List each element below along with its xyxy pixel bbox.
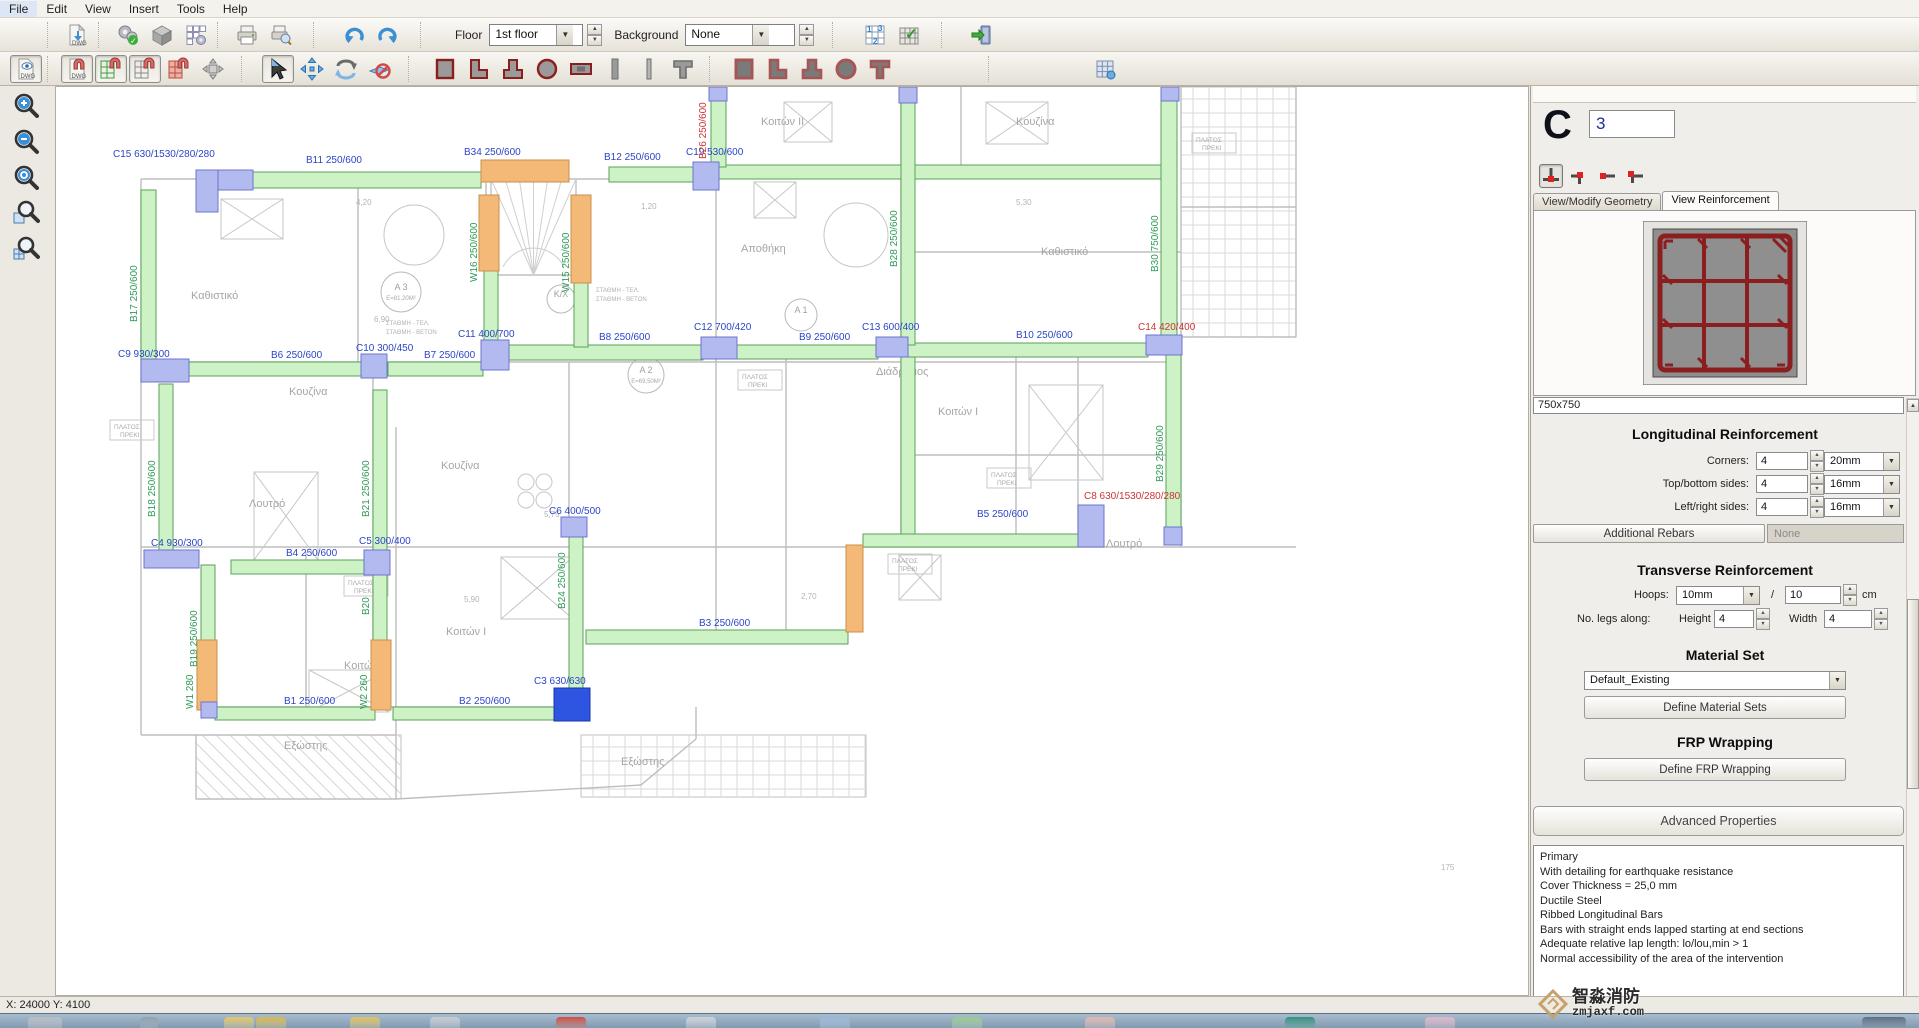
svg-text:ΠΛΑΤΟΣ: ΠΛΑΤΟΣ bbox=[892, 558, 918, 565]
svg-text:ΠΡΕΚΙ: ΠΡΕΚΙ bbox=[997, 480, 1017, 487]
svg-text:A 2: A 2 bbox=[639, 365, 652, 375]
svg-text:ΣΤΑΘΜΗ - ΒΕΤΟΝ: ΣΤΑΘΜΗ - ΒΕΤΟΝ bbox=[596, 297, 647, 303]
tee-filled-button[interactable] bbox=[864, 55, 896, 83]
watermark-logo-icon bbox=[1538, 989, 1568, 1019]
plan-label: C6 400/500 bbox=[549, 506, 601, 517]
plan-label: B30 750/600 bbox=[1150, 215, 1161, 272]
chevron-down-icon[interactable]: ▼ bbox=[1883, 453, 1899, 470]
svg-text:ΠΡΕΚΙ: ΠΡΕΚΙ bbox=[1202, 145, 1222, 152]
svg-text:ΠΛΑΤΟΣ: ΠΛΑΤΟΣ bbox=[1196, 137, 1222, 144]
chevron-down-icon[interactable]: ▼ bbox=[1883, 476, 1899, 493]
zoom-in-button[interactable] bbox=[6, 90, 46, 120]
left-right-diameter-select[interactable]: 16mm▼ bbox=[1824, 498, 1900, 517]
t-filled-button[interactable] bbox=[796, 55, 828, 83]
tee-section-button[interactable] bbox=[667, 55, 699, 83]
cube-button[interactable] bbox=[146, 21, 178, 49]
svg-text:Λουτρό: Λουτρό bbox=[1106, 538, 1142, 550]
plan-label: B9 250/600 bbox=[799, 332, 851, 343]
column[interactable] bbox=[709, 87, 727, 101]
section-reinforcement-preview bbox=[1643, 221, 1807, 385]
undo-button[interactable] bbox=[338, 21, 370, 49]
orientation-top-button[interactable] bbox=[1623, 164, 1647, 188]
plan-label: C9 930/300 bbox=[118, 349, 170, 360]
background-label: Background bbox=[614, 28, 678, 42]
beam[interactable] bbox=[233, 172, 481, 188]
column[interactable] bbox=[1164, 527, 1182, 545]
application-window: File Edit View Insert Tools Help DWG ✓ F… bbox=[0, 0, 1919, 1028]
chevron-down-icon[interactable]: ▼ bbox=[556, 25, 573, 45]
column[interactable] bbox=[364, 550, 390, 575]
svg-text:Εξώστης: Εξώστης bbox=[284, 740, 327, 752]
beam[interactable] bbox=[901, 92, 915, 345]
wall[interactable] bbox=[197, 640, 217, 710]
plan-label: C13 600/400 bbox=[862, 322, 920, 333]
wall[interactable] bbox=[846, 545, 863, 632]
advanced-properties-button[interactable]: Advanced Properties bbox=[1533, 806, 1904, 836]
delete-tool-button[interactable] bbox=[364, 55, 396, 83]
svg-text:Κουζίνα: Κουζίνα bbox=[289, 386, 328, 398]
hoops-spacing-input[interactable] bbox=[1785, 586, 1841, 604]
reinforcement-preview-area bbox=[1533, 210, 1916, 396]
frp-heading: FRP Wrapping bbox=[1531, 734, 1919, 750]
zoom-grid-button[interactable] bbox=[6, 234, 46, 264]
background-select[interactable]: None▼ bbox=[685, 24, 795, 46]
app-window-icon[interactable] bbox=[686, 1017, 716, 1028]
svg-text:ΠΛΑΤΟΣ: ΠΛΑΤΟΣ bbox=[114, 424, 140, 431]
plan-label: C15 630/1530/280/280 bbox=[113, 149, 215, 160]
top-bottom-count-input[interactable] bbox=[1756, 475, 1808, 493]
beam[interactable] bbox=[1166, 345, 1181, 535]
plan-label: C14 420/400 bbox=[1138, 322, 1196, 333]
beam[interactable] bbox=[609, 167, 693, 182]
rect-filled-button[interactable] bbox=[728, 55, 760, 83]
wall[interactable] bbox=[571, 195, 591, 283]
plan-label: B34 250/600 bbox=[464, 147, 521, 158]
wall-section-button[interactable] bbox=[565, 55, 597, 83]
svg-text:2,70: 2,70 bbox=[801, 592, 817, 601]
save-button[interactable] bbox=[10, 21, 42, 49]
hoops-slash: / bbox=[1771, 589, 1774, 601]
floor-plan[interactable]: A 3E=81,20M²A 1A 2E=69,50M²Κ/ΧΚαθιστικόΚ… bbox=[56, 87, 1528, 995]
beam[interactable] bbox=[388, 362, 483, 376]
folder-3-icon[interactable] bbox=[350, 1017, 380, 1028]
beam[interactable] bbox=[569, 535, 583, 692]
column[interactable] bbox=[196, 170, 218, 212]
column[interactable] bbox=[201, 702, 217, 718]
beam[interactable] bbox=[373, 390, 387, 552]
plan-label: B7 250/600 bbox=[424, 350, 476, 361]
plan-label: B4 250/600 bbox=[286, 548, 338, 559]
hoops-spacing-stepper[interactable]: ▲▼ bbox=[1843, 584, 1857, 606]
grid-check-button[interactable]: ✓ bbox=[893, 21, 925, 49]
plan-label: B10 250/600 bbox=[1016, 330, 1073, 341]
svg-text:ΠΛΑΤΟΣ: ΠΛΑΤΟΣ bbox=[991, 472, 1017, 479]
print-preview-button[interactable] bbox=[265, 21, 297, 49]
grid-snap-button[interactable] bbox=[129, 55, 161, 83]
top-bottom-stepper[interactable]: ▲▼ bbox=[1810, 473, 1824, 495]
properties-panel: C View/Modify Geometry View Reinforcemen… bbox=[1530, 86, 1919, 996]
svg-text:DWG: DWG bbox=[21, 74, 36, 80]
edit-toolbar: DWG DWG bbox=[0, 52, 1919, 86]
svg-text:ΠΛΑΤΟΣ: ΠΛΑΤΟΣ bbox=[348, 580, 374, 587]
zoom-extents-button[interactable] bbox=[6, 162, 46, 192]
beam[interactable] bbox=[176, 362, 363, 376]
settings-check-button[interactable]: ✓ bbox=[112, 21, 144, 49]
left-right-count-input[interactable] bbox=[1756, 498, 1808, 516]
corners-diameter-select[interactable]: 20mm▼ bbox=[1824, 452, 1900, 471]
scroll-up-icon[interactable]: ▲ bbox=[1907, 399, 1919, 412]
plan-label: B19 250/600 bbox=[189, 610, 200, 667]
legs-height-stepper[interactable]: ▲▼ bbox=[1756, 608, 1770, 630]
orientation-bottom-button[interactable] bbox=[1539, 164, 1563, 188]
svg-text:175: 175 bbox=[1441, 863, 1455, 872]
beam[interactable] bbox=[393, 707, 556, 720]
zoom-toolbar bbox=[6, 90, 52, 264]
zoom-out-button[interactable] bbox=[6, 126, 46, 156]
orientation-left-button[interactable] bbox=[1567, 164, 1591, 188]
column[interactable] bbox=[1161, 87, 1179, 101]
t-section-button[interactable] bbox=[497, 55, 529, 83]
floor-label: Floor bbox=[455, 28, 482, 42]
column[interactable] bbox=[899, 87, 917, 103]
l-section-button[interactable] bbox=[463, 55, 495, 83]
hoops-label: Hoops: bbox=[1634, 589, 1669, 601]
app-rose-icon[interactable] bbox=[1425, 1017, 1455, 1028]
app-red-icon[interactable] bbox=[556, 1017, 586, 1028]
plan-label: W2 260 bbox=[359, 674, 370, 709]
svg-text:3: 3 bbox=[878, 24, 883, 33]
dwg-import-button[interactable]: DWG bbox=[61, 21, 93, 49]
svg-text:A 1: A 1 bbox=[794, 305, 807, 315]
select-cursor-button[interactable] bbox=[262, 55, 294, 83]
left-right-label: Left/right sides: bbox=[1674, 501, 1749, 513]
folder-1-icon[interactable] bbox=[224, 1017, 254, 1028]
plan-label: W15 250/600 bbox=[561, 232, 572, 292]
watermark-text: 智淼消防 bbox=[1572, 989, 1644, 1005]
print-button[interactable] bbox=[231, 21, 263, 49]
svg-text:1: 1 bbox=[867, 25, 872, 34]
svg-text:Αποθήκη: Αποθήκη bbox=[741, 243, 786, 255]
l-filled-button[interactable] bbox=[762, 55, 794, 83]
plan-label: B8 250/600 bbox=[599, 332, 651, 343]
start-orb-icon[interactable] bbox=[28, 1017, 62, 1028]
svg-text:ΣΤΑΘΜΗ - ΤΕΛ.: ΣΤΑΘΜΗ - ΤΕΛ. bbox=[596, 288, 640, 294]
plan-label: B3 250/600 bbox=[699, 618, 751, 629]
zoom-window-button[interactable] bbox=[6, 198, 46, 228]
plan-label: C5 300/400 bbox=[359, 536, 411, 547]
plan-label: C11 400/700 bbox=[458, 329, 515, 340]
grid-numbers-button[interactable]: 132 bbox=[859, 21, 891, 49]
svg-text:Κουζίνα: Κουζίνα bbox=[441, 460, 480, 472]
rotate-tool-button[interactable] bbox=[330, 55, 362, 83]
svg-text:ΠΡΕΚΙ: ΠΡΕΚΙ bbox=[748, 382, 768, 389]
circle-section-button[interactable] bbox=[531, 55, 563, 83]
redo-button[interactable] bbox=[372, 21, 404, 49]
chevron-down-icon[interactable]: ▼ bbox=[1883, 499, 1899, 516]
additional-rebars-value: None bbox=[1767, 524, 1904, 543]
main-toolbar: DWG ✓ Floor 1st floor▼ ▲▼ Background Non… bbox=[0, 18, 1919, 52]
plan-label: B28 250/600 bbox=[889, 210, 900, 267]
hoops-diameter-select[interactable]: 10mm▼ bbox=[1676, 586, 1760, 605]
floor-stepper[interactable]: ▲▼ bbox=[587, 24, 602, 46]
plan-label: W16 250/600 bbox=[469, 222, 480, 282]
app-green-icon[interactable] bbox=[952, 1017, 982, 1028]
plan-label: B26 250/600 bbox=[698, 102, 709, 159]
plan-label: C12 700/420 bbox=[694, 322, 752, 333]
transverse-heading: Transverse Reinforcement bbox=[1531, 562, 1919, 578]
chevron-down-icon[interactable]: ▼ bbox=[1829, 672, 1845, 689]
svg-text:DWG: DWG bbox=[72, 74, 87, 80]
plan-label: B24 250/600 bbox=[557, 552, 568, 609]
plan-label: C8 630/1530/280/280 bbox=[1084, 491, 1181, 502]
grid-snap-green-button[interactable] bbox=[95, 55, 127, 83]
background-stepper[interactable]: ▲▼ bbox=[799, 24, 814, 46]
legs-height-input[interactable] bbox=[1714, 610, 1754, 628]
column[interactable] bbox=[701, 337, 737, 359]
svg-text:Κουζίνα: Κουζίνα bbox=[1016, 116, 1055, 128]
svg-text:4,20: 4,20 bbox=[356, 198, 372, 207]
dwg-eye-button[interactable]: DWG bbox=[10, 55, 42, 83]
define-frp-wrapping-button[interactable]: Define FRP Wrapping bbox=[1584, 758, 1846, 781]
circle-filled-button[interactable] bbox=[830, 55, 862, 83]
column[interactable] bbox=[141, 359, 189, 382]
svg-text:A 3: A 3 bbox=[394, 282, 407, 292]
section-size-value[interactable]: 750x750 bbox=[1533, 397, 1904, 414]
bar-section-button[interactable] bbox=[599, 55, 631, 83]
watermark: 智淼消防 zmjaxf.com bbox=[1538, 986, 1718, 1022]
panel-tabs: View/Modify Geometry View Reinforcement bbox=[1533, 193, 1780, 211]
left-right-stepper[interactable]: ▲▼ bbox=[1810, 496, 1824, 518]
additional-rebars-button[interactable]: Additional Rebars bbox=[1533, 524, 1765, 543]
app-pink-icon[interactable] bbox=[1085, 1017, 1115, 1028]
menu-insert[interactable]: Insert bbox=[120, 1, 168, 17]
svg-text:Κοιτών I: Κοιτών I bbox=[938, 406, 978, 418]
menu-view[interactable]: View bbox=[76, 1, 120, 17]
plan-label: B21 250/600 bbox=[361, 460, 372, 517]
plan-label: C3 630/630 bbox=[534, 676, 586, 687]
tab-view-modify-geometry[interactable]: View/Modify Geometry bbox=[1533, 193, 1661, 211]
top-bottom-diameter-select[interactable]: 16mm▼ bbox=[1824, 475, 1900, 494]
column[interactable] bbox=[361, 354, 387, 378]
beam[interactable] bbox=[509, 345, 703, 360]
floor-select[interactable]: 1st floor▼ bbox=[489, 24, 583, 46]
plan-label: B11 250/600 bbox=[306, 155, 362, 166]
column[interactable] bbox=[1146, 335, 1182, 355]
beam[interactable] bbox=[586, 630, 848, 644]
app-blue-icon[interactable] bbox=[820, 1017, 850, 1028]
section-number-input[interactable] bbox=[1589, 110, 1675, 138]
menu-help[interactable]: Help bbox=[214, 1, 257, 17]
svg-text:Καθιστικό: Καθιστικό bbox=[1041, 246, 1088, 258]
svg-text:ΠΛΑΤΟΣ: ΠΛΑΤΟΣ bbox=[742, 374, 768, 381]
menu-edit[interactable]: Edit bbox=[37, 1, 76, 17]
beam[interactable] bbox=[215, 707, 375, 720]
plan-label: B17 250/600 bbox=[129, 265, 140, 322]
plan-label: W1 280 bbox=[185, 674, 196, 709]
chevron-down-icon[interactable]: ▼ bbox=[752, 25, 769, 45]
plan-label: C4 930/300 bbox=[151, 538, 203, 549]
beam[interactable] bbox=[719, 165, 1166, 179]
svg-text:2: 2 bbox=[873, 37, 878, 46]
svg-text:ΠΡΕΚΙ: ΠΡΕΚΙ bbox=[898, 566, 918, 573]
svg-text:ΣΤΑΘΜΗ - ΤΕΛ.: ΣΤΑΘΜΗ - ΤΕΛ. bbox=[386, 321, 430, 327]
menu-file[interactable]: File bbox=[0, 1, 37, 17]
svg-text:DWG: DWG bbox=[72, 41, 87, 47]
corners-count-input[interactable] bbox=[1756, 452, 1808, 470]
svg-text:Κοιτών I: Κοιτών I bbox=[446, 626, 486, 638]
beam[interactable] bbox=[574, 282, 588, 347]
beam[interactable] bbox=[231, 560, 368, 574]
wall[interactable] bbox=[479, 195, 499, 271]
hoops-unit-label: cm bbox=[1862, 589, 1877, 601]
scrollbar-thumb[interactable] bbox=[1907, 599, 1919, 789]
beam[interactable] bbox=[141, 190, 156, 362]
legs-height-label: Height bbox=[1679, 613, 1711, 625]
svg-text:✓: ✓ bbox=[905, 26, 918, 43]
column[interactable] bbox=[1078, 505, 1104, 547]
chevron-down-icon[interactable]: ▼ bbox=[1743, 587, 1759, 604]
svg-text:E=81,20M²: E=81,20M² bbox=[386, 296, 416, 302]
drawing-canvas[interactable]: A 3E=81,20M²A 1A 2E=69,50M²Κ/ΧΚαθιστικόΚ… bbox=[55, 86, 1529, 996]
svg-text:5,30: 5,30 bbox=[1016, 198, 1032, 207]
panel-scrollbar[interactable]: ▲ ▼ bbox=[1906, 398, 1919, 1028]
move-grid-button[interactable] bbox=[197, 55, 229, 83]
plan-label: C19 530/600 bbox=[686, 147, 744, 158]
corners-label: Corners: bbox=[1707, 455, 1749, 467]
svg-text:E=69,50M²: E=69,50M² bbox=[631, 379, 661, 385]
plan-label: B12 250/600 bbox=[604, 152, 661, 163]
grid-snap-red-button[interactable] bbox=[163, 55, 195, 83]
pinned-dots-icon[interactable] bbox=[140, 1017, 158, 1028]
dwg-magnet-button[interactable]: DWG bbox=[61, 55, 93, 83]
panel-header-strip bbox=[1533, 86, 1916, 103]
svg-text:ΣΤΑΘΜΗ - ΒΕΤΟΝ: ΣΤΑΘΜΗ - ΒΕΤΟΝ bbox=[386, 330, 437, 336]
svg-text:5,90: 5,90 bbox=[464, 595, 480, 604]
beam[interactable] bbox=[159, 384, 173, 556]
tab-view-reinforcement[interactable]: View Reinforcement bbox=[1662, 191, 1778, 211]
plan-label: B29 250/600 bbox=[1155, 425, 1166, 482]
svg-text:Λουτρό: Λουτρό bbox=[249, 498, 285, 510]
beam[interactable] bbox=[736, 345, 878, 359]
material-set-select[interactable]: Default_Existing▼ bbox=[1584, 671, 1846, 690]
svg-text:Κοιτών II: Κοιτών II bbox=[761, 116, 804, 128]
beam[interactable] bbox=[906, 343, 1148, 357]
plan-label: B6 250/600 bbox=[271, 350, 323, 361]
wall[interactable] bbox=[481, 160, 569, 182]
corners-stepper[interactable]: ▲▼ bbox=[1810, 450, 1824, 472]
top-bottom-label: Top/bottom sides: bbox=[1663, 478, 1749, 490]
column[interactable] bbox=[144, 550, 199, 568]
exit-button[interactable] bbox=[966, 21, 998, 49]
rect-section-button[interactable] bbox=[429, 55, 461, 83]
plan-label: B18 250/600 bbox=[147, 460, 158, 517]
plan-label: B2 250/600 bbox=[459, 696, 511, 707]
svg-text:1,20: 1,20 bbox=[641, 202, 657, 211]
cursor-coordinates: X: 24000 Y: 4100 bbox=[6, 999, 90, 1011]
column[interactable] bbox=[481, 340, 509, 370]
section-type-letter: C bbox=[1543, 104, 1572, 146]
plan-label: B5 250/600 bbox=[977, 509, 1029, 520]
longitudinal-heading: Longitudinal Reinforcement bbox=[1531, 426, 1919, 442]
svg-text:Καθιστικό: Καθιστικό bbox=[191, 290, 238, 302]
menu-tools[interactable]: Tools bbox=[168, 1, 214, 17]
plan-label: B20 bbox=[361, 597, 372, 615]
svg-text:✓: ✓ bbox=[130, 36, 137, 45]
plan-label: B1 250/600 bbox=[284, 696, 336, 707]
wall[interactable] bbox=[371, 640, 391, 710]
define-material-sets-button[interactable]: Define Material Sets bbox=[1584, 696, 1846, 719]
plan-label: C10 300/450 bbox=[356, 343, 414, 354]
menu-bar: File Edit View Insert Tools Help bbox=[0, 0, 1919, 18]
column[interactable] bbox=[693, 162, 719, 190]
watermark-url: zmjaxf.com bbox=[1572, 1005, 1644, 1019]
folder-2-icon[interactable] bbox=[256, 1017, 286, 1028]
app-gray-icon[interactable] bbox=[430, 1017, 460, 1028]
legs-width-stepper[interactable]: ▲▼ bbox=[1874, 608, 1888, 630]
beam[interactable] bbox=[901, 357, 915, 534]
svg-text:ΠΡΕΚΙ: ΠΡΕΚΙ bbox=[120, 432, 140, 439]
beam[interactable] bbox=[1161, 90, 1177, 345]
bar2-section-button[interactable] bbox=[633, 55, 665, 83]
selected-column-C3[interactable] bbox=[554, 688, 590, 721]
move-tool-button[interactable] bbox=[296, 55, 328, 83]
tray-icon[interactable] bbox=[1862, 1017, 1906, 1028]
app-teal-icon[interactable] bbox=[1285, 1017, 1315, 1028]
legs-along-label: No. legs along: bbox=[1577, 613, 1650, 625]
grid-gear-button[interactable] bbox=[180, 21, 212, 49]
material-set-heading: Material Set bbox=[1531, 647, 1919, 663]
orientation-right-button[interactable] bbox=[1595, 164, 1619, 188]
grid-small-button[interactable] bbox=[1089, 55, 1121, 83]
svg-text:ΠΡΕΚΙ: ΠΡΕΚΙ bbox=[354, 588, 374, 595]
column[interactable] bbox=[561, 517, 587, 537]
column[interactable] bbox=[876, 337, 908, 357]
legs-width-input[interactable] bbox=[1824, 610, 1872, 628]
svg-text:Εξώστης: Εξώστης bbox=[621, 756, 664, 768]
beam[interactable] bbox=[863, 534, 1078, 547]
legs-width-label: Width bbox=[1789, 613, 1817, 625]
